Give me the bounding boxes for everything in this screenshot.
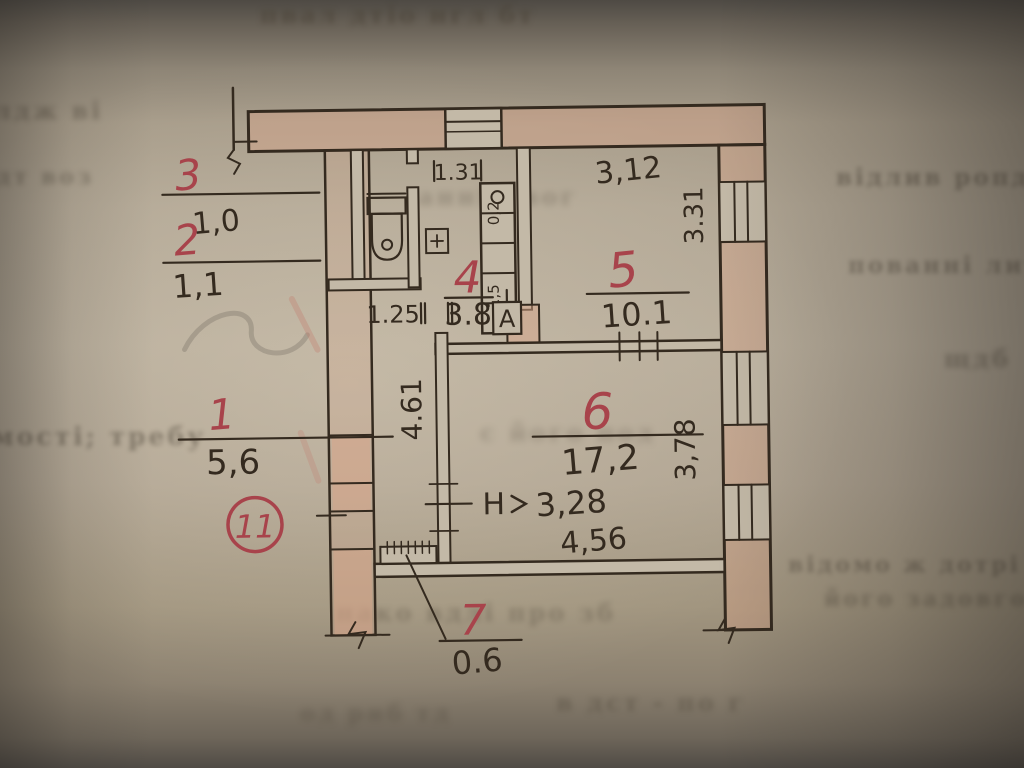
- room5-room6-wall: [435, 331, 721, 363]
- room-number: 4: [453, 252, 482, 303]
- floor-plan-drawing: 3 2 1 4 5 6 7 11 1,0 1,1 5,6 3.8 10.1 17…: [0, 0, 1024, 768]
- balcony: [380, 541, 445, 640]
- toilet-icon: [367, 193, 406, 260]
- sheet-number-stamp: 11: [228, 497, 283, 552]
- svg-text:А: А: [499, 305, 516, 333]
- break-mark-icon: [228, 150, 240, 174]
- room-area: 1,1: [171, 265, 224, 306]
- room-area: 17,2: [560, 438, 641, 484]
- floor-plan-photo: пвал дтіо нгл бт відлив ропдв пованні ли…: [0, 0, 1024, 768]
- ceiling-height-note: Н 3,28: [482, 482, 608, 525]
- vent-box-icon: [426, 229, 448, 253]
- axis-marker: А: [493, 302, 521, 334]
- top-outer-wall: [248, 104, 765, 151]
- room6-left-wall: [427, 333, 458, 573]
- equals-mark-icon: [512, 496, 526, 512]
- dimension-label: 3,12: [593, 150, 663, 192]
- pencil-smudge: [184, 312, 308, 354]
- dimension-label: 3,78: [669, 418, 703, 481]
- svg-text:11: 11: [234, 507, 275, 546]
- room-number: 1: [206, 389, 237, 440]
- window-icon: [722, 351, 769, 425]
- room-number: 7: [460, 595, 488, 644]
- room-number: 3: [173, 149, 204, 200]
- dimension-label: 4.61: [395, 378, 429, 441]
- dimension-label: 0,2: [485, 201, 503, 225]
- svg-text:3,28: 3,28: [534, 482, 608, 525]
- window-icon: [719, 181, 766, 242]
- dimension-label: 1.25: [366, 300, 420, 329]
- room-area: 5,6: [206, 442, 261, 483]
- window-icon: [723, 484, 770, 540]
- room-area: 1,0: [191, 203, 241, 242]
- room-number: 5: [605, 241, 641, 300]
- room-number: 6: [581, 383, 614, 441]
- dimension-label: 3.31: [679, 186, 710, 244]
- dimension-label: 4,56: [559, 521, 628, 561]
- dimension-label: 1.31: [433, 160, 482, 186]
- room-area: 10.1: [600, 293, 674, 336]
- svg-text:Н: Н: [482, 487, 505, 522]
- window-icon: [445, 108, 502, 149]
- room-area: 0.6: [450, 640, 504, 682]
- red-crayon-mark: [301, 433, 319, 481]
